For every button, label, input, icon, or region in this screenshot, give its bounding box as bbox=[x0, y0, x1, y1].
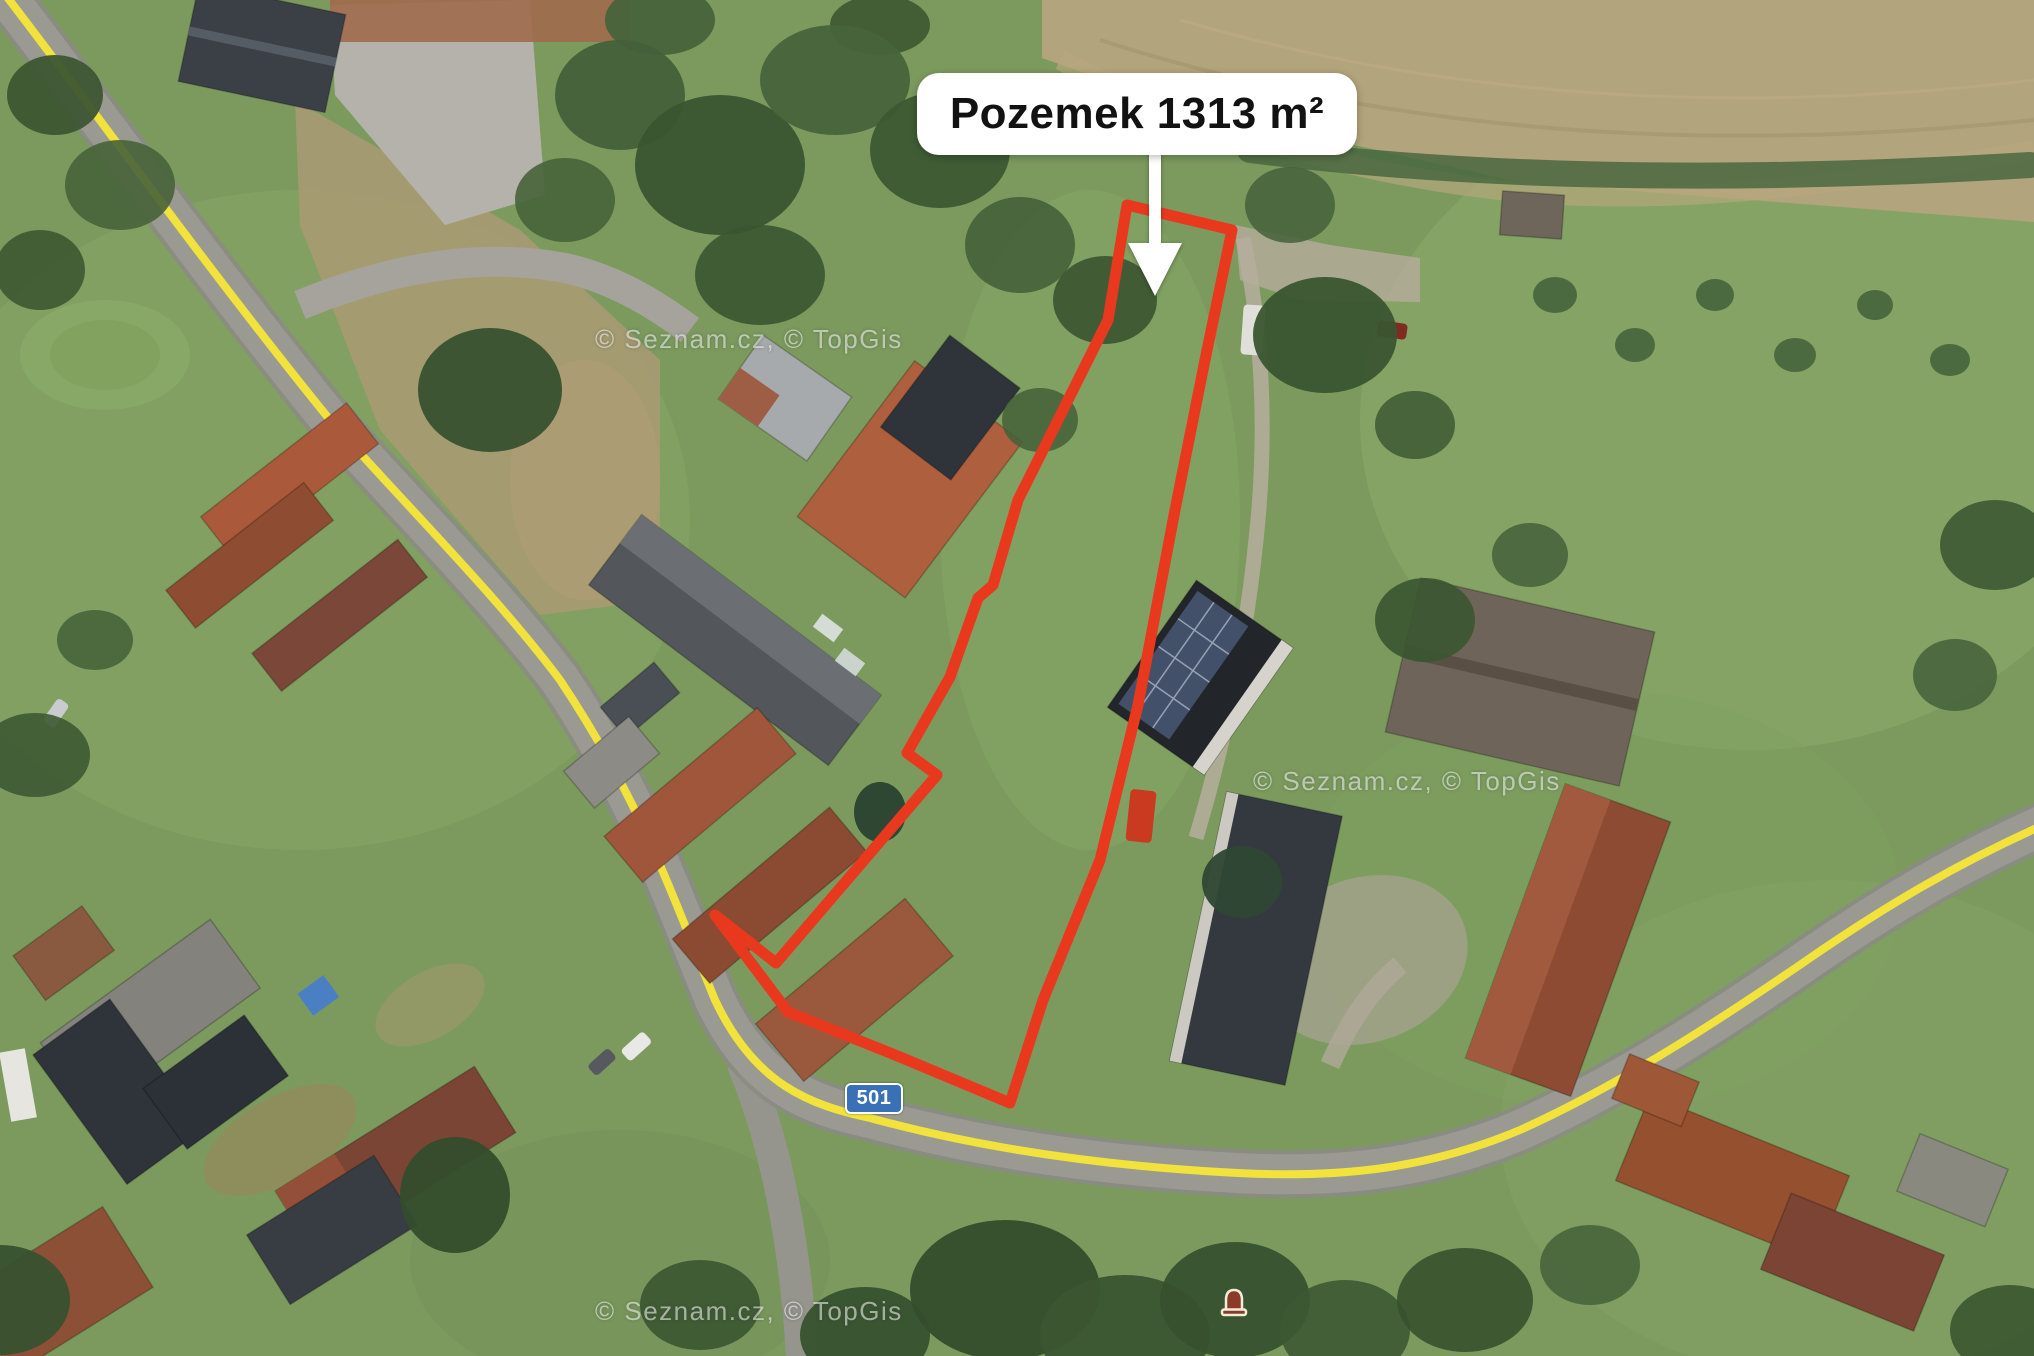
map-watermark: © Seznam.cz, © TopGis bbox=[595, 1296, 903, 1327]
road-number-badge: 501 bbox=[845, 1083, 903, 1114]
parcel-area-label-text: Pozemek 1313 m² bbox=[950, 89, 1324, 139]
road-number-text: 501 bbox=[857, 1087, 892, 1110]
aerial-imagery bbox=[0, 0, 2034, 1356]
down-arrow-icon bbox=[1118, 150, 1192, 300]
aerial-map-canvas[interactable]: Pozemek 1313 m² 501 © Seznam.cz, © TopGi… bbox=[0, 0, 2034, 1356]
map-watermark: © Seznam.cz, © TopGis bbox=[1253, 766, 1561, 797]
bell-marker-icon[interactable] bbox=[1216, 1286, 1252, 1322]
parcel-area-label: Pozemek 1313 m² bbox=[917, 73, 1357, 155]
map-watermark: © Seznam.cz, © TopGis bbox=[595, 324, 903, 355]
